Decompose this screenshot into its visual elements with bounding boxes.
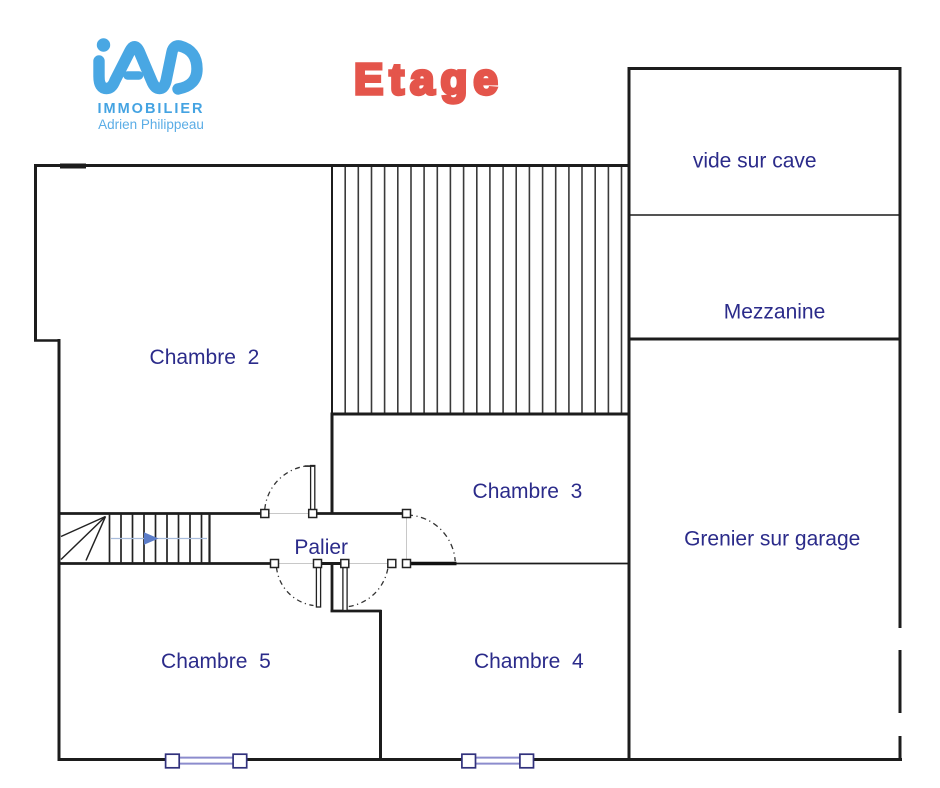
svg-text:Palier: Palier (294, 536, 348, 559)
svg-text:vide sur cave: vide sur cave (693, 150, 817, 173)
svg-text:Mezzanine: Mezzanine (724, 301, 826, 324)
svg-text:Chambre 2: Chambre 2 (150, 346, 260, 369)
svg-text:Chambre 4: Chambre 4 (474, 650, 584, 673)
svg-text:Grenier sur garage: Grenier sur garage (684, 528, 860, 551)
svg-text:Chambre 3: Chambre 3 (473, 480, 583, 503)
svg-text:Chambre 5: Chambre 5 (161, 650, 271, 673)
